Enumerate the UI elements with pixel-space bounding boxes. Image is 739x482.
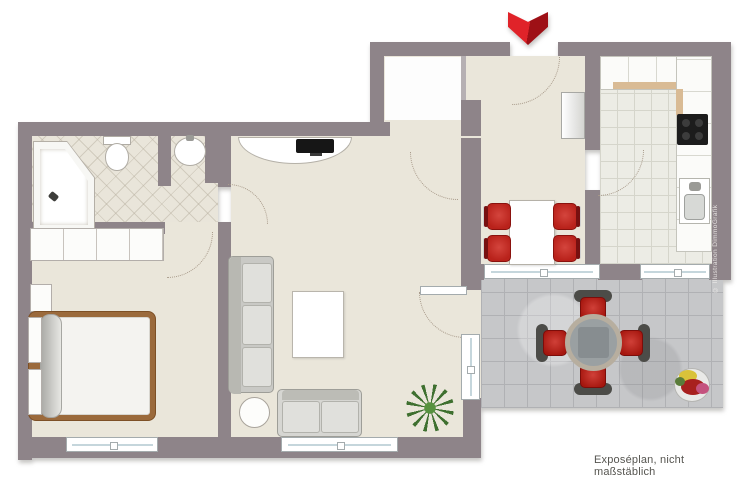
floorplan-image: © Illustration DimmoGrafik Exposéplan, n… — [0, 0, 739, 482]
bed-pillow-roll — [40, 314, 62, 418]
burner-icon — [682, 119, 690, 127]
wall-bathroom-right — [218, 136, 231, 187]
sofa-cushion — [242, 305, 272, 345]
side-table-round — [239, 397, 270, 428]
loveseat-cushion — [282, 401, 320, 433]
burner-icon — [695, 132, 703, 140]
washbasin-tap-icon — [186, 135, 194, 141]
kitchen-sink-unit — [679, 178, 710, 224]
toilet-bowl — [105, 143, 129, 171]
floorplan: © Illustration DimmoGrafik — [0, 0, 739, 482]
sofa-three-seater — [228, 256, 274, 393]
living-room-window — [281, 437, 398, 452]
wall-hall-kitchen-lower — [585, 190, 600, 264]
illustration-credit: © Illustration DimmoGrafik — [712, 168, 719, 293]
terrace-chair — [619, 330, 643, 356]
terrace-table-base — [578, 327, 609, 358]
sofa-cushion — [242, 263, 272, 303]
bedroom-cabinet — [30, 284, 52, 312]
bedside-table — [28, 317, 42, 363]
wall-living-right-upper — [461, 138, 481, 290]
burner-icon — [695, 119, 703, 127]
kitchen-counter-edge-right — [676, 89, 683, 115]
wall-top-left-of-entrance — [370, 42, 510, 56]
dining-table — [509, 200, 555, 265]
plan-caption: Exposéplan, nicht maßstäblich — [594, 454, 739, 478]
loveseat — [277, 389, 362, 437]
flower-pot — [674, 368, 710, 402]
flowers-leaves — [675, 377, 685, 386]
terrace-door-panel — [420, 286, 467, 295]
kitchen-window — [640, 264, 710, 279]
hall-wardrobe — [561, 92, 585, 139]
wall-bath-stub-left — [158, 136, 171, 186]
entrance-arrow-icon — [508, 12, 548, 45]
loveseat-backrest — [282, 390, 359, 400]
bedroom-wardrobe — [30, 228, 164, 261]
sink-faucet-icon — [689, 182, 701, 191]
wall-hall-kitchen-upper — [585, 56, 600, 150]
wall-bath-stub-right — [205, 136, 218, 183]
potted-plant — [406, 384, 454, 432]
flowers-pink — [696, 383, 709, 394]
dining-window — [484, 264, 600, 279]
storage-partition — [461, 56, 466, 104]
coffee-table — [292, 291, 344, 358]
terrace-chair — [543, 330, 567, 356]
bedside-table — [28, 369, 42, 415]
sink-basin — [684, 194, 705, 220]
storage-room-floor — [385, 57, 462, 120]
dining-chair — [487, 203, 511, 230]
wall-storage-stub — [461, 100, 481, 136]
burner-icon — [682, 132, 690, 140]
stove-cooktop — [677, 114, 708, 145]
tv — [296, 139, 334, 153]
bedroom-window — [66, 437, 158, 452]
wall-top-right-of-entrance — [558, 42, 731, 56]
wall-main-top — [18, 122, 390, 136]
wall-living-right-lower — [463, 398, 481, 437]
bed-mattress — [48, 317, 150, 415]
washbasin — [174, 137, 206, 166]
terrace-table-round — [565, 314, 622, 371]
dining-chair — [553, 203, 577, 230]
loveseat-cushion — [321, 401, 359, 433]
sofa-backrest — [229, 257, 241, 394]
dining-chair — [553, 235, 577, 262]
wall-between-terrace-windows — [598, 264, 642, 280]
living-side-window — [461, 334, 480, 400]
sofa-cushion — [242, 347, 272, 387]
tv-stand — [310, 153, 322, 156]
dining-chair — [487, 235, 511, 262]
